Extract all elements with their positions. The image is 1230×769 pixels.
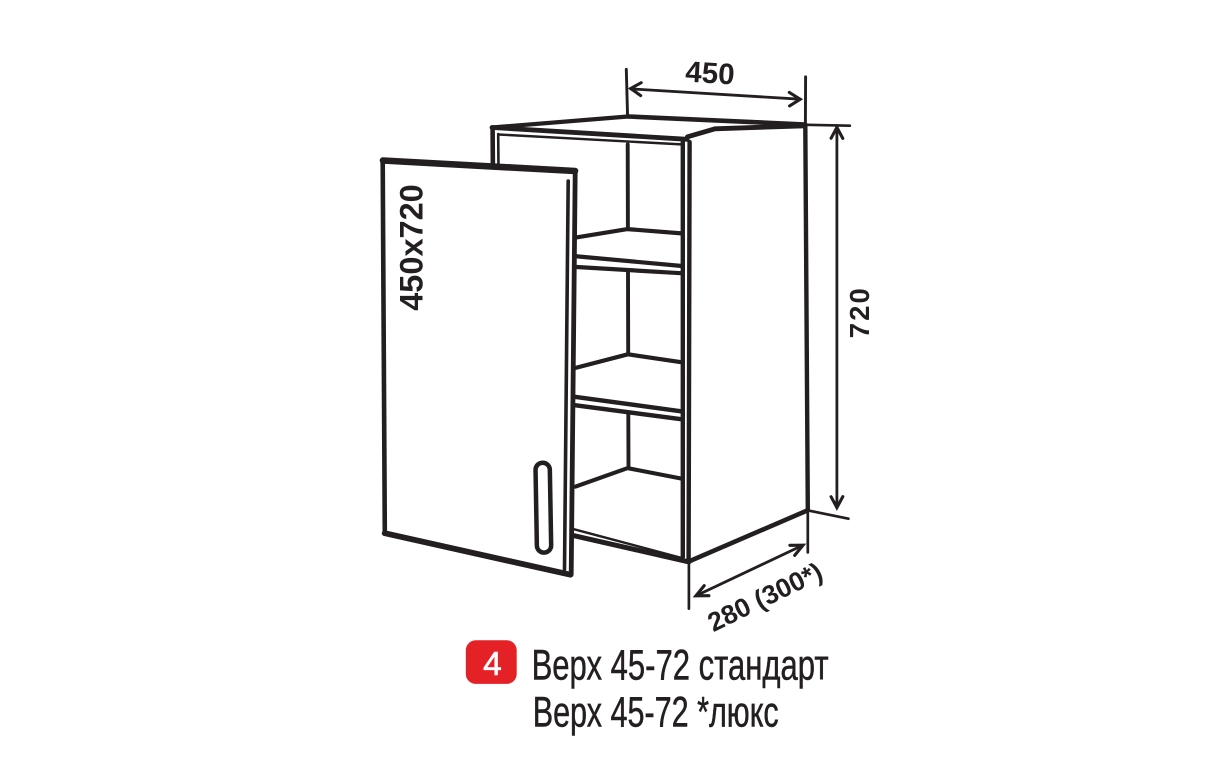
svg-text:Верх 45-72 стандарт: Верх 45-72 стандарт	[532, 642, 829, 690]
svg-text:720: 720	[844, 288, 875, 338]
svg-text:450x720: 450x720	[393, 184, 429, 311]
svg-text:450: 450	[684, 56, 735, 92]
svg-text:Верх 45-72 *люкс: Верх 45-72 *люкс	[533, 688, 779, 736]
svg-text:4: 4	[483, 646, 502, 683]
